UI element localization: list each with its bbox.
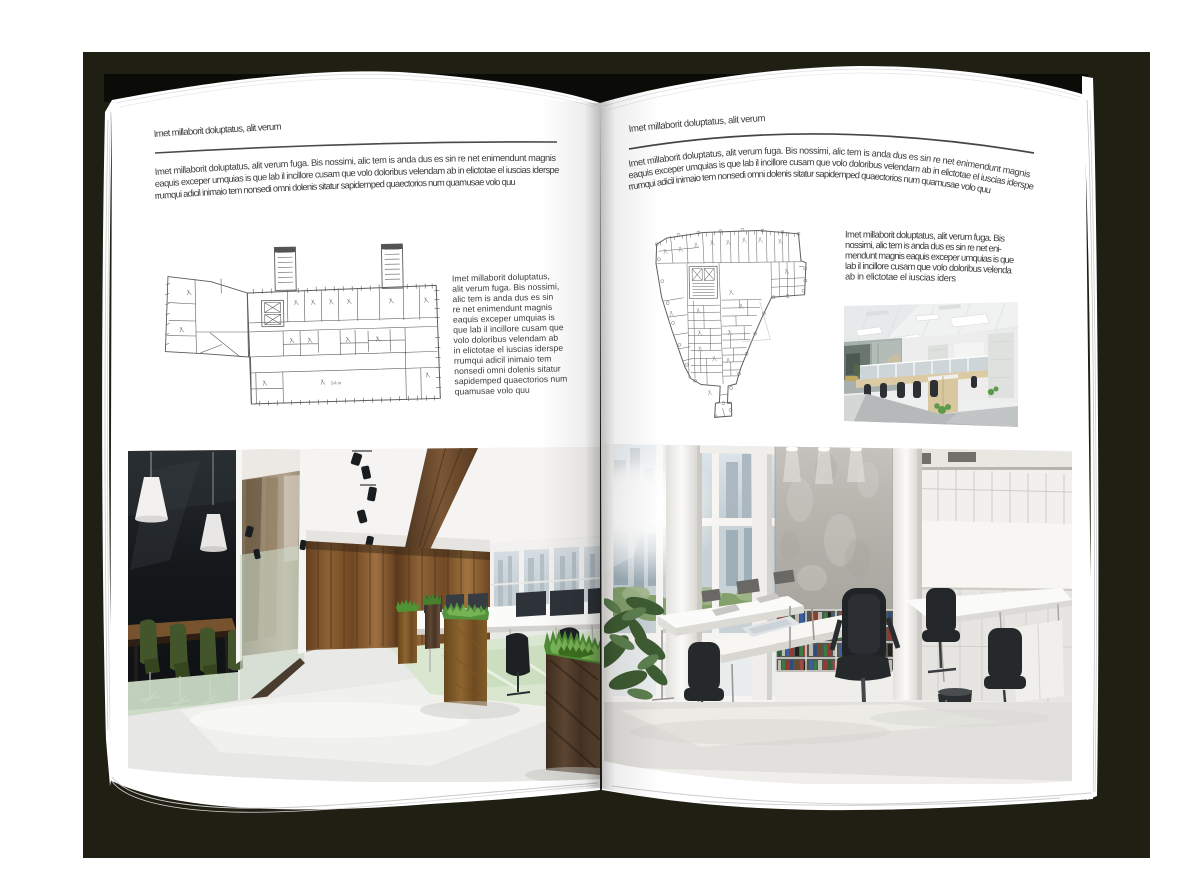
svg-text:ab in elictotae el iuscias ide: ab in elictotae el iuscias iders bbox=[845, 270, 957, 283]
svg-text:quamusae volo quu: quamusae volo quu bbox=[455, 385, 530, 397]
svg-text:2-й эт: 2-й эт bbox=[331, 380, 342, 385]
